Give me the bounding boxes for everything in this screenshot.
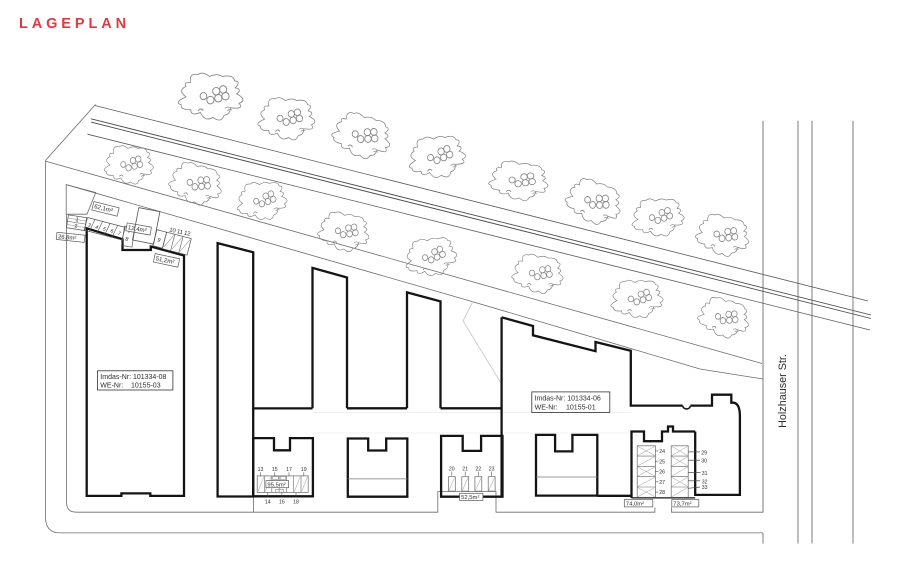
svg-text:23: 23 [489,467,495,473]
svg-text:9: 9 [156,237,160,244]
svg-text:WE-Nr:: WE-Nr: [535,404,558,411]
svg-text:13: 13 [258,467,264,473]
svg-text:24: 24 [659,449,665,455]
svg-text:2: 2 [74,224,78,230]
svg-text:Imdas-Nr: 101334-06: Imdas-Nr: 101334-06 [535,395,601,402]
svg-text:Imdas-Nr: 101334-08: Imdas-Nr: 101334-08 [100,374,166,381]
svg-text:52,5m²: 52,5m² [461,495,479,501]
svg-text:17: 17 [286,467,292,473]
svg-text:74,0m²: 74,0m² [626,502,644,508]
svg-text:14: 14 [265,500,271,506]
svg-text:18: 18 [293,500,299,506]
svg-text:26: 26 [659,470,665,476]
svg-text:10155-01: 10155-01 [566,404,596,411]
svg-text:28: 28 [659,490,665,496]
svg-text:33: 33 [702,485,708,491]
svg-text:31: 31 [702,471,708,477]
svg-text:LAGEPLAN: LAGEPLAN [19,16,130,32]
svg-text:WE-Nr:: WE-Nr: [100,383,123,390]
svg-text:27: 27 [659,480,665,486]
svg-text:10155-03: 10155-03 [131,383,161,390]
svg-text:21: 21 [462,467,468,473]
svg-text:25: 25 [659,459,665,465]
svg-text:7: 7 [117,231,122,238]
svg-text:19: 19 [301,467,307,473]
svg-text:Holzhauser Str.: Holzhauser Str. [777,354,789,428]
svg-text:15: 15 [272,467,278,473]
svg-text:8: 8 [125,237,129,243]
svg-text:95,5m²: 95,5m² [267,482,285,488]
svg-text:29: 29 [701,450,707,456]
svg-text:20: 20 [449,467,455,473]
svg-text:16: 16 [279,500,285,506]
svg-text:1: 1 [75,217,79,223]
svg-text:26,8m²: 26,8m² [58,234,77,242]
svg-text:22: 22 [475,467,481,473]
svg-text:73,7m²: 73,7m² [673,502,691,508]
svg-text:10 11 12: 10 11 12 [169,227,192,237]
svg-text:30: 30 [701,458,707,464]
